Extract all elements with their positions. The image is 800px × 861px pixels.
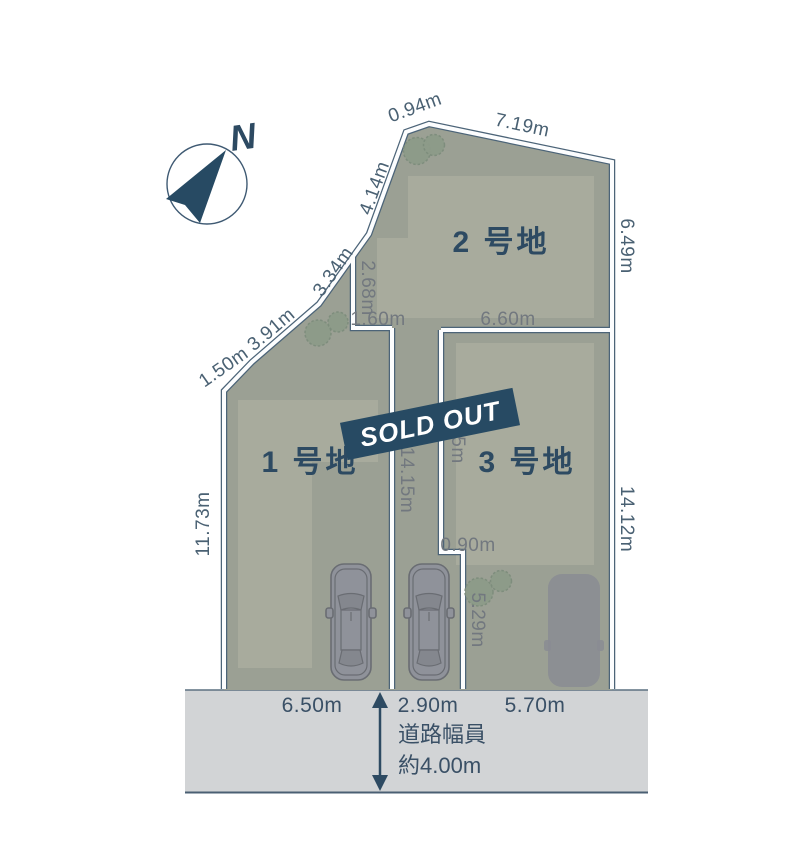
compass: N: [166, 115, 260, 224]
dim-label-0-90m: 0.90m: [440, 535, 495, 556]
dim-label-14-15m: 14.15m: [396, 447, 417, 513]
lot3-label: 3 号地: [478, 446, 575, 479]
dim-label-6-50m: 6.50m: [282, 694, 343, 717]
site-plan-canvas: N 2.68m 1.60m 6.60m 14.15m 8.85m 0.90m 5…: [0, 0, 800, 861]
car-driveway: [404, 564, 454, 680]
car-lot1: [326, 564, 376, 680]
dim-label-6-49m: 6.49m: [616, 218, 637, 273]
road-dimension-labels: 6.50m 2.90m 5.70m: [282, 694, 566, 717]
dim-label-14-12m: 14.12m: [616, 486, 637, 552]
lot2-label: 2 号地: [452, 226, 549, 259]
road-width-caption-line2: 約4.00m: [398, 753, 481, 778]
dim-label-6-60m: 6.60m: [480, 309, 535, 330]
dim-label-2-68m: 2.68m: [357, 260, 378, 315]
dim-label-5-29m: 5.29m: [467, 592, 488, 647]
dim-label-2-90m: 2.90m: [398, 694, 459, 717]
road-width-caption-line1: 道路幅員: [398, 722, 486, 747]
site-plan-svg: N 2.68m 1.60m 6.60m 14.15m 8.85m 0.90m 5…: [0, 0, 800, 861]
dim-label-0-94m: 0.94m: [386, 89, 445, 128]
parking-space-silhouette: [544, 574, 604, 687]
dim-label-11-73m: 11.73m: [193, 492, 214, 557]
dim-label-5-70m: 5.70m: [505, 694, 566, 717]
dim-label-1-60m: 1.60m: [350, 309, 405, 330]
lot1-label: 1 号地: [261, 446, 358, 479]
north-label: N: [227, 115, 259, 159]
